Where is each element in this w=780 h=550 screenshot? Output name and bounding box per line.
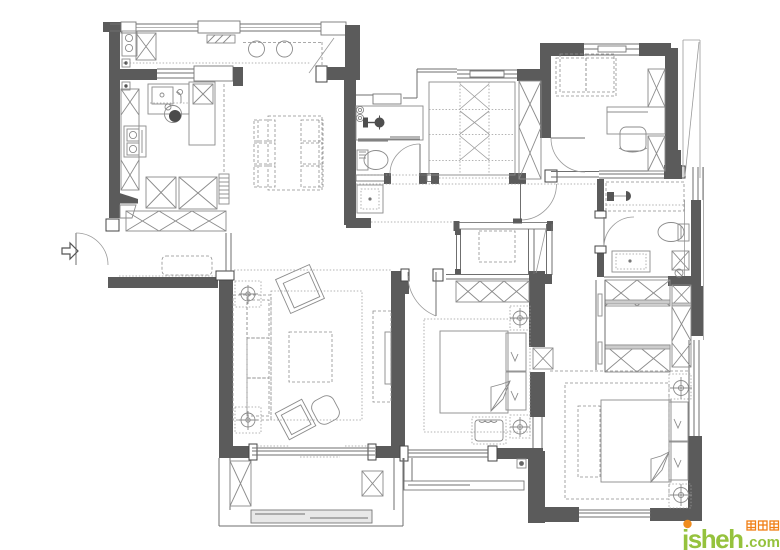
svg-text:jsheh: jsheh [681,524,744,550]
svg-text:.com: .com [745,534,780,550]
